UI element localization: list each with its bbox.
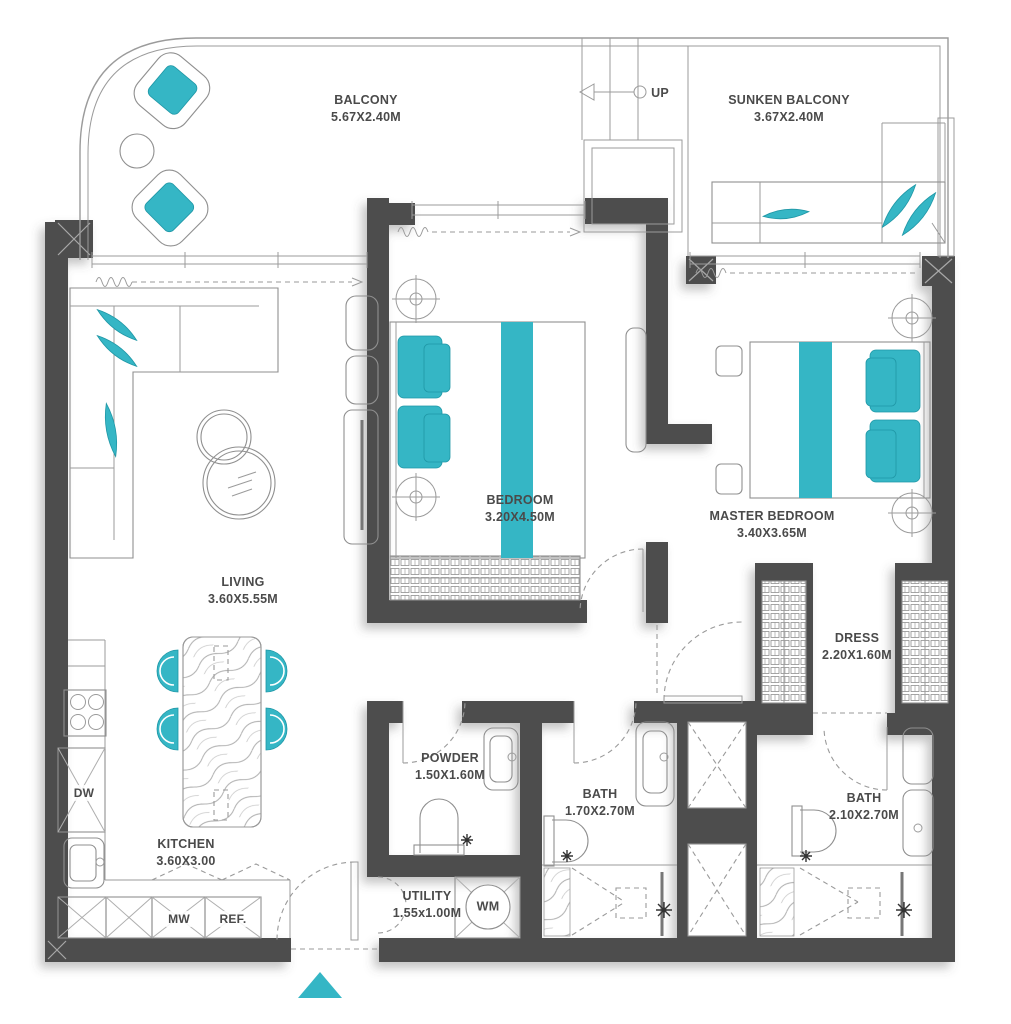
floor-drain bbox=[561, 850, 573, 862]
label-master-bedroom: MASTER BEDROOM 3.40X3.65M bbox=[709, 508, 834, 542]
room-dims: 3.60X3.00 bbox=[156, 853, 215, 870]
dress-wardrobe-left bbox=[762, 581, 806, 703]
leaf-pillow bbox=[763, 207, 810, 221]
room-name: DRESS bbox=[822, 630, 892, 647]
room-name: MASTER BEDROOM bbox=[709, 508, 834, 525]
curtain-lines bbox=[96, 228, 915, 287]
dress-wardrobe-right bbox=[902, 581, 948, 703]
label-dress: DRESS 2.20X1.60M bbox=[822, 630, 892, 664]
label-bath-1: BATH 1.70X2.70M bbox=[565, 786, 635, 820]
nightstand bbox=[716, 464, 742, 494]
floor-plan: BALCONY 5.67X2.40M SUNKEN BALCONY 3.67X2… bbox=[0, 0, 1011, 1024]
wall-powder-top-a bbox=[367, 701, 403, 723]
room-dims: 1.55x1.00M bbox=[393, 905, 462, 922]
bedroom-bench bbox=[626, 328, 646, 452]
room-name: BEDROOM bbox=[485, 492, 555, 509]
master-bed bbox=[750, 342, 930, 498]
label-mw: MW bbox=[166, 911, 192, 927]
ceiling-fan bbox=[392, 473, 440, 521]
label-dw: DW bbox=[72, 785, 97, 801]
vanity-sink bbox=[903, 728, 933, 784]
label-utility: UTILITY 1.55x1.00M bbox=[393, 888, 462, 922]
wall-corridor-stub bbox=[646, 542, 668, 623]
shaft bbox=[688, 722, 746, 808]
master-door-arc bbox=[664, 622, 742, 700]
wall-bedroom-bottom bbox=[367, 600, 587, 623]
wall-powder-left bbox=[367, 723, 389, 855]
balcony-side-table bbox=[120, 134, 154, 168]
room-name: BATH bbox=[829, 790, 899, 807]
bed-runner bbox=[799, 342, 832, 498]
vanity-sink bbox=[903, 790, 933, 856]
bath1-fixtures bbox=[542, 722, 677, 936]
label-ref: REF. bbox=[217, 911, 248, 927]
room-name: UTILITY bbox=[393, 888, 462, 905]
room-name: LIVING bbox=[208, 574, 278, 591]
balcony-armchair-1 bbox=[128, 46, 217, 135]
wall-powder-bath-divider bbox=[520, 701, 542, 962]
shower-head bbox=[896, 902, 912, 918]
label-kitchen: KITCHEN 3.60X3.00 bbox=[156, 836, 215, 870]
label-balcony: BALCONY 5.67X2.40M bbox=[331, 92, 401, 126]
ceiling-fan bbox=[392, 275, 440, 323]
leaf-pillow bbox=[102, 403, 120, 458]
ceiling-fan bbox=[888, 489, 936, 537]
balcony-outline bbox=[80, 38, 954, 260]
wall-bath1-top-a bbox=[542, 701, 574, 723]
room-dims: 1.70X2.70M bbox=[565, 803, 635, 820]
label-living: LIVING 3.60X5.55M bbox=[208, 574, 278, 608]
dining-table bbox=[183, 637, 261, 827]
room-name: KITCHEN bbox=[156, 836, 215, 853]
wall-jog bbox=[646, 424, 712, 444]
wall-bottom-right bbox=[379, 938, 955, 962]
room-dims: 3.20X4.50M bbox=[485, 509, 555, 526]
balcony-armchair-2 bbox=[125, 163, 214, 252]
bed-pillow bbox=[424, 414, 450, 462]
wall-powder-top-b bbox=[462, 701, 520, 723]
label-bedroom: BEDROOM 3.20X4.50M bbox=[485, 492, 555, 526]
entry-marker bbox=[298, 972, 342, 998]
wall-bath1-top-b bbox=[634, 701, 677, 723]
bed-pillow bbox=[866, 358, 896, 406]
bed-pillow bbox=[424, 344, 450, 392]
label-sunken-balcony: SUNKEN BALCONY 3.67X2.40M bbox=[728, 92, 850, 126]
wall-powder-bottom bbox=[367, 855, 520, 877]
wall-bedroom-right bbox=[646, 198, 668, 444]
floor-drain bbox=[461, 834, 473, 846]
powder-fixtures bbox=[414, 728, 518, 855]
ceiling-fan bbox=[888, 294, 936, 342]
armchair-cushion bbox=[142, 180, 196, 234]
entry-door-leaf bbox=[351, 862, 358, 940]
cooktop bbox=[64, 690, 106, 736]
room-name: POWDER bbox=[415, 750, 485, 767]
label-bath-2: BATH 2.10X2.70M bbox=[829, 790, 899, 824]
closet-bedroom bbox=[390, 556, 580, 600]
room-dims: 3.40X3.65M bbox=[709, 525, 834, 542]
room-dims: 5.67X2.40M bbox=[331, 109, 401, 126]
room-dims: 3.67X2.40M bbox=[728, 109, 850, 126]
label-wm: WM bbox=[477, 899, 500, 916]
room-name: BALCONY bbox=[331, 92, 401, 109]
room-dims: 2.20X1.60M bbox=[822, 647, 892, 664]
room-name: BATH bbox=[565, 786, 635, 803]
sunken-balcony-sofa bbox=[712, 123, 945, 243]
label-powder: POWDER 1.50X1.60M bbox=[415, 750, 485, 784]
room-dims: 2.10X2.70M bbox=[829, 807, 899, 824]
bath2-fixtures bbox=[757, 728, 933, 936]
nightstand bbox=[716, 346, 742, 376]
shower-head bbox=[656, 902, 672, 918]
label-up: UP bbox=[651, 85, 669, 102]
armchair-cushion bbox=[146, 63, 200, 117]
vanity-sink bbox=[484, 728, 518, 790]
room-name: SUNKEN BALCONY bbox=[728, 92, 850, 109]
wall-bath2-top-right bbox=[887, 713, 955, 735]
bath1-door-arc bbox=[574, 701, 636, 763]
coffee-tables bbox=[197, 410, 275, 519]
wall-bedroom-top-stub bbox=[367, 203, 415, 225]
bath2-door-arc bbox=[824, 727, 887, 790]
room-dims: 3.60X5.55M bbox=[208, 591, 278, 608]
bedroom-door-arc bbox=[580, 549, 643, 612]
room-dims: 1.50X1.60M bbox=[415, 767, 485, 784]
wall-bottom-left bbox=[45, 938, 291, 962]
bed-pillow bbox=[866, 430, 896, 478]
wall-bath2-top-left bbox=[755, 713, 813, 735]
entry-door-arc bbox=[277, 862, 355, 940]
